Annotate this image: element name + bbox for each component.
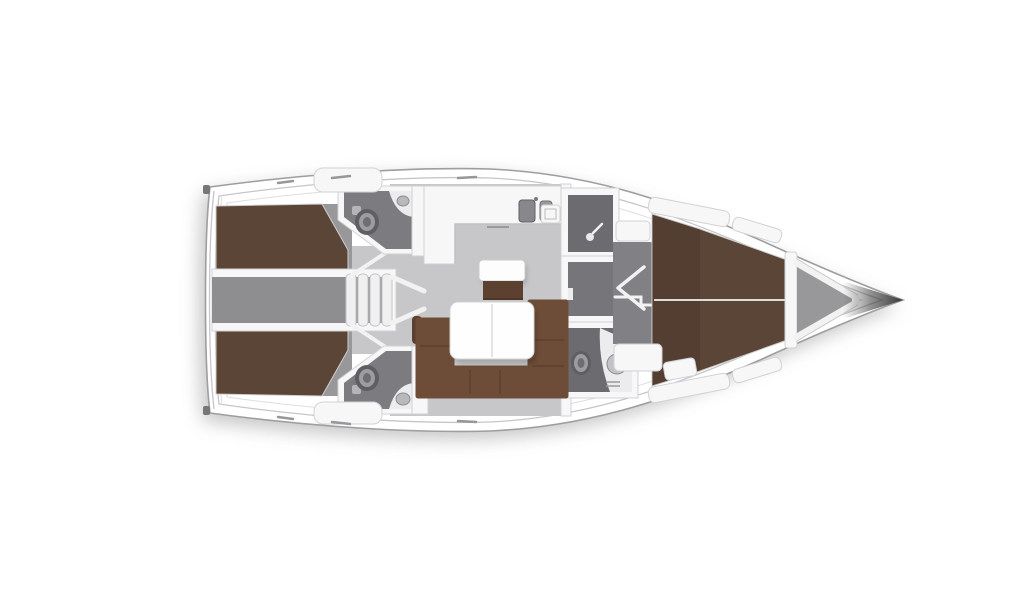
deck-hatch-starboard	[314, 402, 382, 424]
aft-cabin-port	[216, 204, 352, 270]
toilet-bowl	[363, 373, 371, 383]
deck-slit	[458, 177, 476, 178]
forward-vestibule	[613, 242, 656, 344]
boat-floor-plan: Sailing yacht interior floor plan — top-…	[0, 0, 1024, 600]
companionway-step	[370, 274, 380, 326]
shower-floor	[568, 195, 613, 252]
deck-hatch-port	[314, 168, 382, 192]
vestibule-floor	[613, 242, 655, 344]
anchor-locker	[785, 252, 903, 348]
forward-shower	[561, 188, 619, 258]
toilet-bowl	[363, 217, 371, 227]
door-handle	[568, 288, 573, 300]
forward-head-anteroom	[561, 256, 619, 322]
floor-plan-canvas: Sailing yacht interior floor plan — top-…	[0, 0, 1024, 600]
aft-cabin-starboard	[216, 330, 352, 396]
deck-slit	[458, 421, 476, 422]
basin-bowl	[397, 196, 409, 206]
anteroom-floor	[568, 262, 613, 316]
stern-cleat-port	[203, 185, 210, 194]
basin-bowl	[396, 393, 410, 405]
galley-sink-left	[519, 200, 535, 222]
stern-cleat-starboard	[203, 406, 210, 415]
small-hatch-port	[541, 205, 560, 223]
island-seat-top	[479, 260, 525, 281]
vanity-cabinet-starboard	[614, 344, 662, 371]
galley-faucet	[534, 197, 538, 201]
companionway-step	[358, 274, 368, 326]
toilet-bowl	[578, 358, 585, 368]
forward-bulkhead	[785, 252, 797, 348]
island-seat-base	[483, 281, 523, 300]
corner-cabinet-port	[616, 221, 650, 241]
companionway-step	[346, 274, 356, 326]
companionway-step	[382, 274, 392, 326]
bow-tip-shadow	[843, 281, 903, 319]
shower-head-icon	[586, 233, 594, 241]
